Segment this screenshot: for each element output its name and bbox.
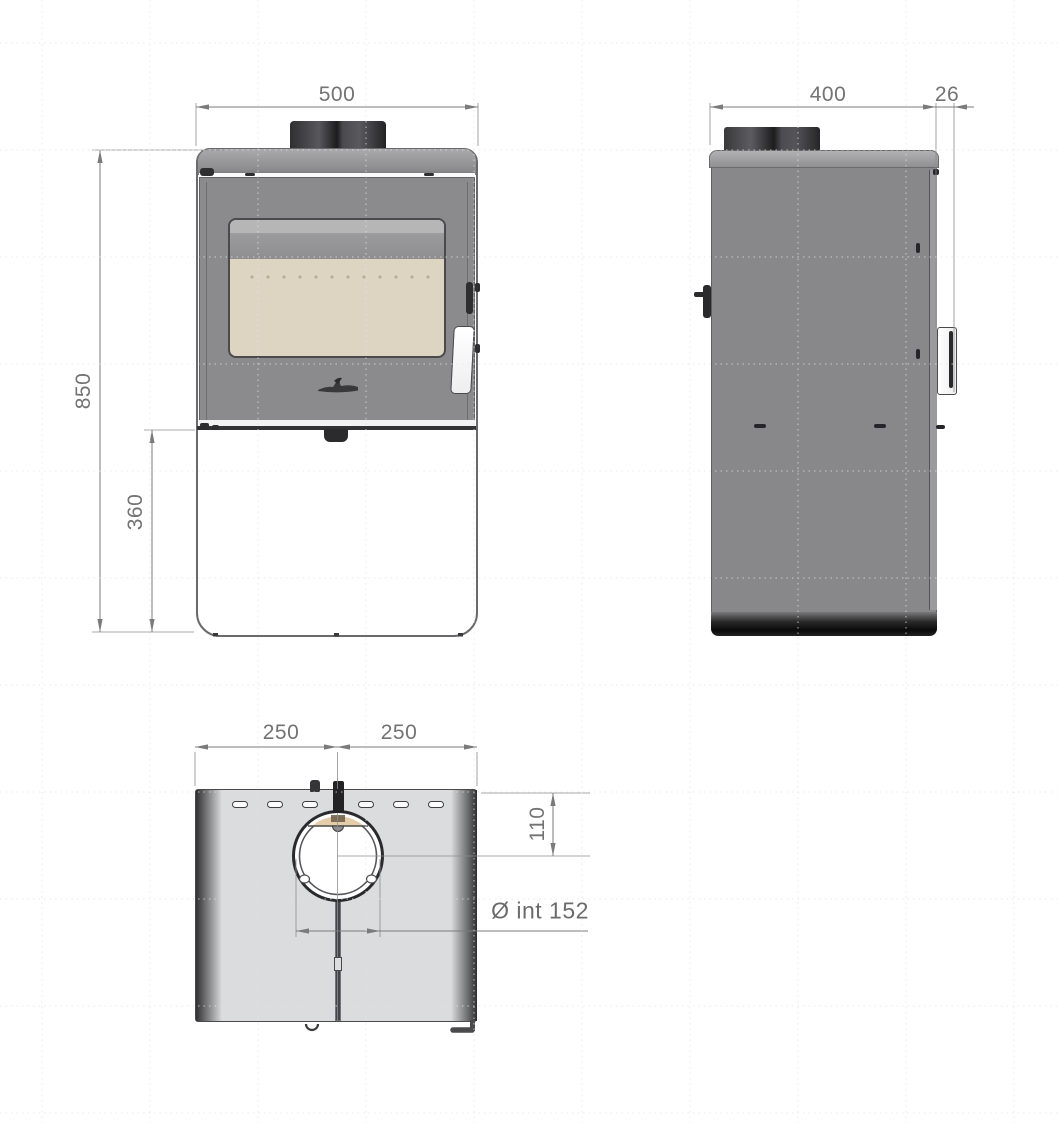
side-top-plate	[709, 150, 939, 168]
dim-label-side-depth: 400	[810, 83, 847, 107]
side-door-handle-bar	[949, 331, 953, 388]
side-seam-mark-2	[874, 424, 886, 428]
window-air-holes-row	[242, 273, 434, 279]
side-screw-mark-1	[916, 243, 920, 253]
side-top-hinge-mark	[933, 169, 939, 175]
window-top-band	[230, 220, 444, 233]
front-door-handle	[450, 326, 475, 394]
side-door-handle	[937, 327, 957, 395]
window-baffle-band	[230, 233, 444, 259]
front-door-window	[228, 218, 446, 358]
dim-label-flue-diameter: Ø int 152	[491, 898, 589, 925]
front-top-plate	[198, 149, 476, 175]
top-vent-slot-5	[393, 801, 409, 808]
front-flue-collar	[290, 121, 386, 150]
top-center-seam-break	[334, 957, 342, 971]
dim-label-door-protrusion: 26	[935, 83, 959, 107]
dim-label-flue-right: 250	[381, 721, 418, 745]
dim-label-flue-left: 250	[263, 721, 300, 745]
dim-label-front-width: 500	[319, 83, 356, 107]
side-front-tick	[936, 425, 945, 429]
front-top-clip-right	[424, 173, 434, 176]
side-body	[711, 150, 937, 636]
top-vent-slot-1	[232, 801, 248, 808]
front-bottom-hinge-1	[200, 423, 209, 430]
top-right-side-shade	[451, 790, 477, 1021]
front-top-clip-left	[245, 173, 255, 176]
dim-label-front-height: 850	[72, 373, 96, 410]
top-latch-pin	[333, 781, 344, 813]
side-seam-mark-1	[754, 424, 766, 428]
front-bottom-hinge-2	[212, 425, 219, 430]
dim-label-lower-height: 360	[124, 494, 148, 531]
top-bottom-ring-hook	[306, 1024, 318, 1030]
side-door-edge	[929, 170, 937, 610]
door-frame-line-left	[206, 182, 207, 420]
front-top-hinge	[200, 168, 214, 176]
technical-drawing-canvas: 500 850 360 400 26 250 250 110 Ø int 152	[0, 0, 1058, 1123]
front-door-hinge-bar	[466, 282, 473, 314]
front-right-edge-mark-1	[475, 283, 480, 292]
front-right-edge-mark-2	[475, 344, 480, 353]
side-rear-knob	[703, 285, 711, 318]
top-left-side-shade	[196, 790, 222, 1021]
side-screw-mark-2	[916, 349, 920, 359]
top-vent-slot-6	[428, 801, 444, 808]
dim-label-flue-offset: 110	[526, 807, 550, 842]
top-vent-slot-3	[302, 801, 318, 808]
front-door-latch	[324, 429, 348, 442]
side-flue-collar	[724, 127, 820, 151]
top-vent-slot-4	[358, 801, 374, 808]
top-vent-slot-2	[267, 801, 283, 808]
top-latch-knob	[310, 780, 320, 792]
side-base-plinth	[711, 612, 937, 636]
